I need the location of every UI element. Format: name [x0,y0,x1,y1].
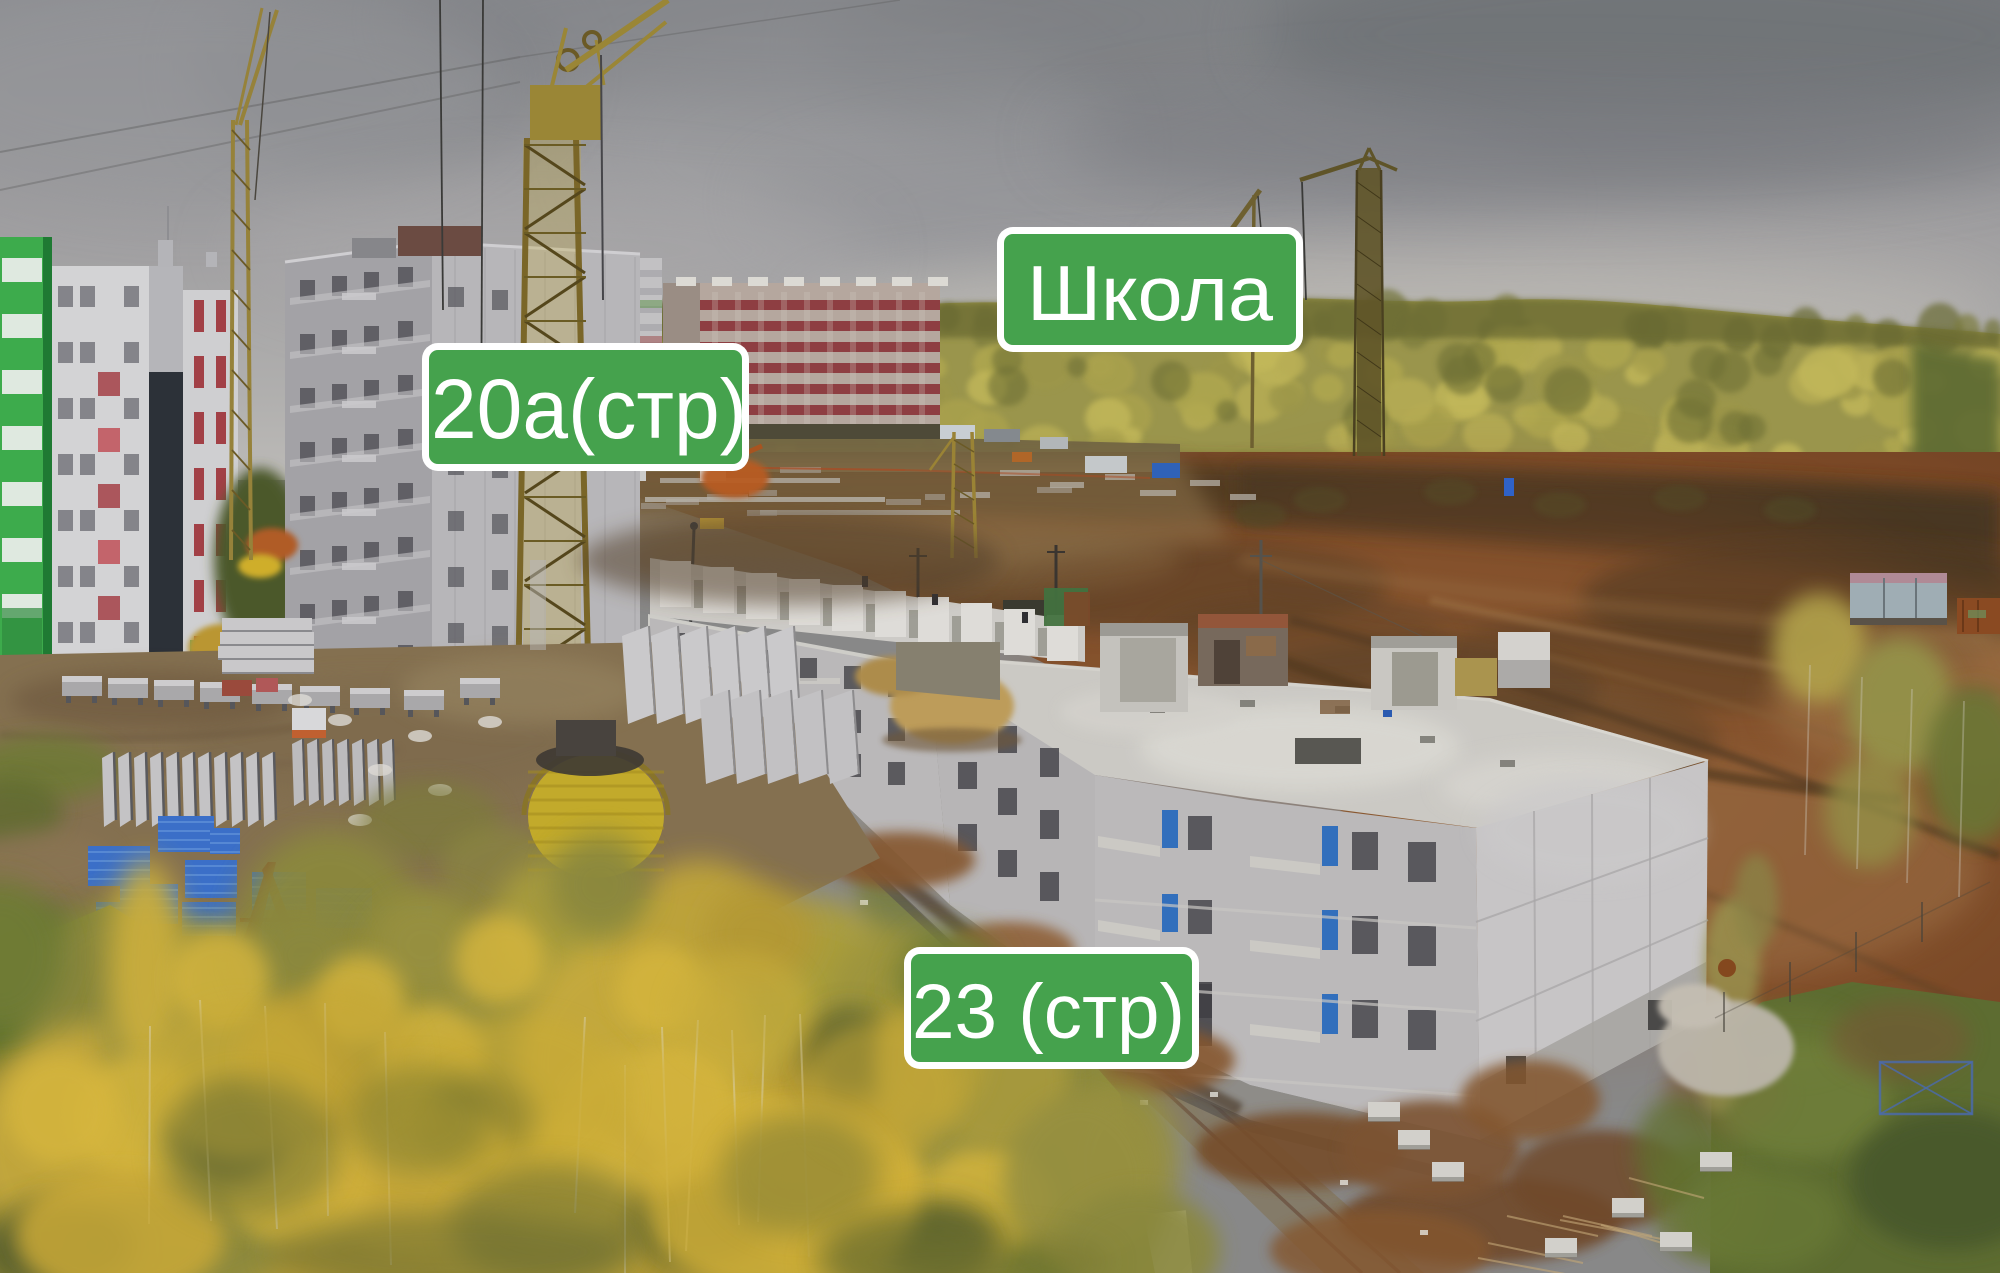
svg-text:Школа: Школа [1027,249,1274,337]
svg-text:23 (стр): 23 (стр) [912,969,1185,1055]
svg-text:20а(стр): 20а(стр) [431,362,747,456]
